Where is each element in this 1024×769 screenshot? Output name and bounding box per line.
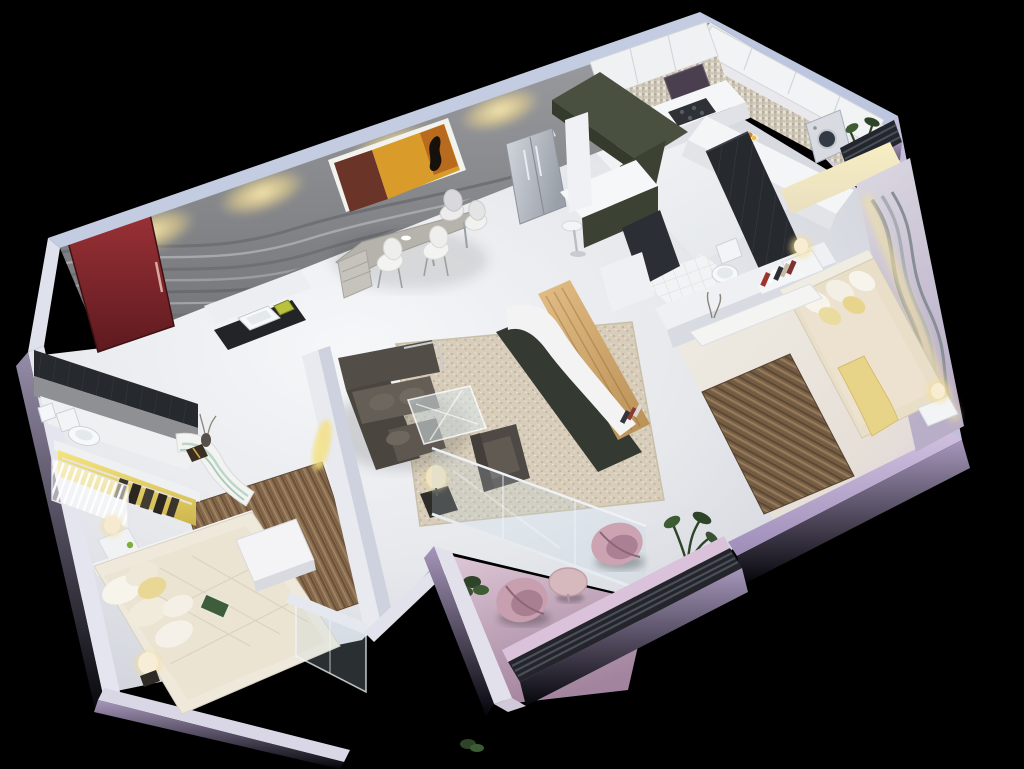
kitchen-pillar <box>565 112 592 213</box>
floorplan-render <box>0 0 1024 769</box>
decor-vase <box>201 433 211 447</box>
green-apple <box>127 542 133 548</box>
floorplan-scene <box>0 0 1024 769</box>
